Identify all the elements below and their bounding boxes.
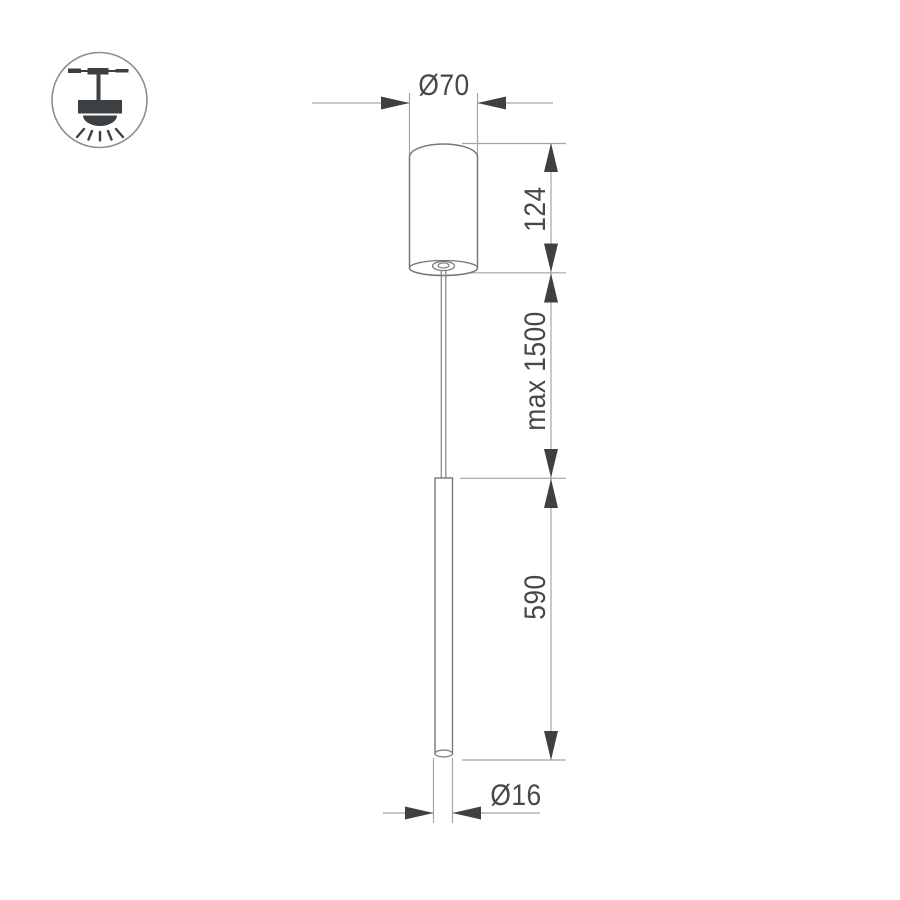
lamp-tube	[435, 478, 453, 754]
canopy-height-label: 124	[521, 186, 551, 231]
ceiling-pendant-icon	[52, 53, 147, 148]
tube-length-label: 590	[521, 574, 551, 619]
canopy-diameter-label: Ø70	[418, 71, 469, 101]
tube-diameter-label: Ø16	[490, 781, 541, 811]
light-rays-icon	[77, 129, 123, 141]
canopy-body	[410, 144, 478, 276]
suspension-wire	[441, 270, 446, 478]
technical-drawing-canvas: Ø70 124 max 1500 590 Ø16	[0, 0, 900, 900]
pendant-lamp-technical-drawing	[0, 0, 900, 900]
lamp-tube-bottom-rim	[435, 750, 453, 757]
suspension-length-label: max 1500	[521, 311, 551, 430]
pendant-lamp-outline	[410, 144, 478, 757]
